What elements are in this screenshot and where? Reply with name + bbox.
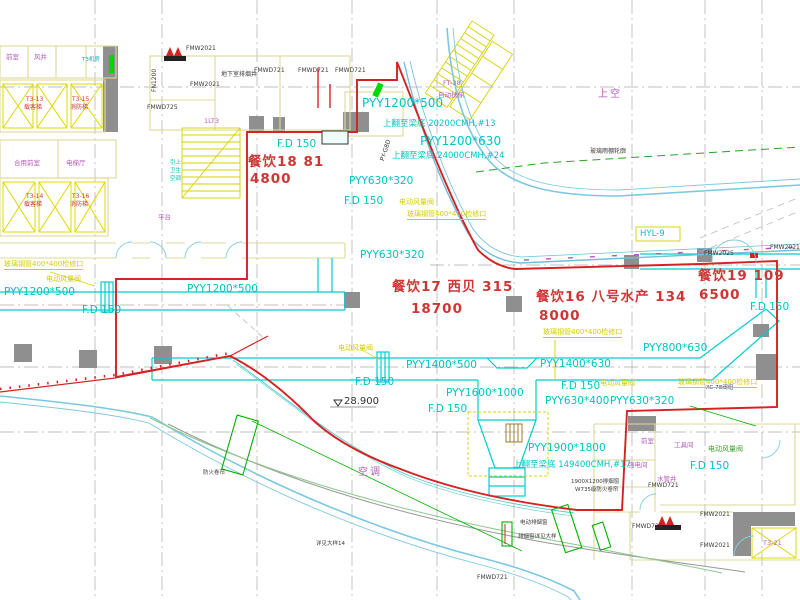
volume-damper — [506, 424, 522, 442]
cad-drawing-canvas: PYY1200*500上翻至梁底 20200CMH,#13PYY1200*630… — [0, 0, 800, 600]
duct-network — [0, 254, 800, 496]
yellow-annotation-shapes — [50, 227, 680, 476]
escalators — [425, 21, 515, 121]
walls-top-left-core — [0, 46, 403, 258]
door-arcs — [116, 240, 780, 556]
curtain-wall-curves-bottom — [0, 360, 745, 600]
curtain-wall-curves-top — [404, 28, 800, 263]
staircase — [182, 128, 240, 198]
grid-lines — [0, 0, 800, 600]
landscape-dashed-line — [476, 147, 800, 172]
drawing-geometry — [0, 0, 800, 600]
structural-columns — [14, 46, 795, 556]
